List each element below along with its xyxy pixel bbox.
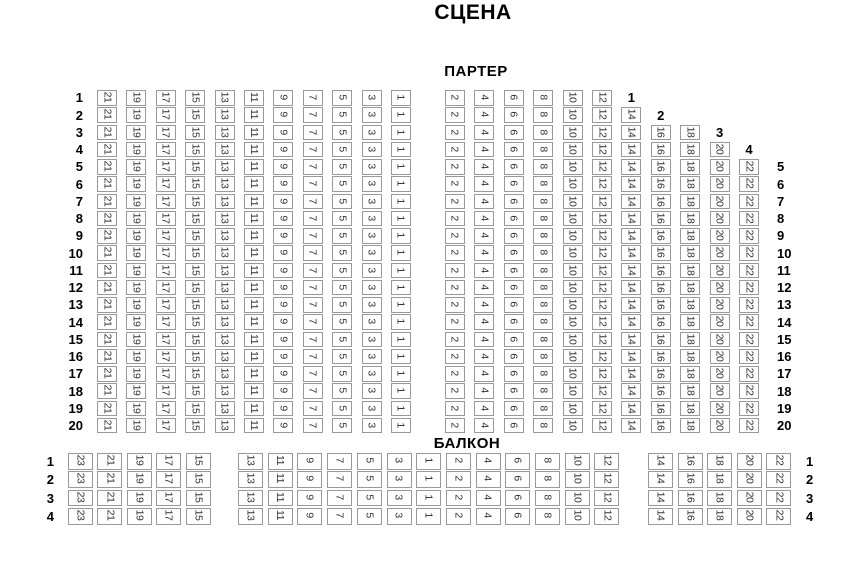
seat[interactable]: 9 <box>297 490 322 507</box>
seat[interactable]: 2 <box>445 228 465 244</box>
seat[interactable]: 2 <box>445 280 465 296</box>
seat[interactable]: 22 <box>739 176 759 192</box>
seat[interactable]: 14 <box>621 280 641 296</box>
seat[interactable]: 18 <box>680 176 700 192</box>
seat[interactable]: 13 <box>215 245 235 261</box>
seat[interactable]: 19 <box>126 383 146 399</box>
seat[interactable]: 1 <box>391 107 411 123</box>
seat[interactable]: 1 <box>391 90 411 106</box>
seat[interactable]: 15 <box>185 142 205 158</box>
seat[interactable]: 3 <box>362 366 382 382</box>
seat[interactable]: 11 <box>244 90 264 106</box>
seat[interactable]: 10 <box>563 142 583 158</box>
seat[interactable]: 1 <box>391 418 411 434</box>
seat[interactable]: 8 <box>535 453 560 470</box>
seat[interactable]: 6 <box>504 280 524 296</box>
seat[interactable]: 20 <box>737 490 762 507</box>
seat[interactable]: 1 <box>391 159 411 175</box>
seat[interactable]: 15 <box>185 245 205 261</box>
seat[interactable]: 1 <box>391 125 411 141</box>
seat[interactable]: 16 <box>678 453 703 470</box>
seat[interactable]: 15 <box>185 194 205 210</box>
seat[interactable]: 10 <box>563 228 583 244</box>
seat[interactable]: 5 <box>332 107 352 123</box>
seat[interactable]: 3 <box>362 107 382 123</box>
seat[interactable]: 19 <box>126 366 146 382</box>
seat[interactable]: 22 <box>739 297 759 313</box>
seat[interactable]: 21 <box>97 383 117 399</box>
seat[interactable]: 21 <box>97 107 117 123</box>
seat[interactable]: 10 <box>563 194 583 210</box>
seat[interactable]: 14 <box>621 125 641 141</box>
seat[interactable]: 14 <box>621 314 641 330</box>
seat[interactable]: 13 <box>215 366 235 382</box>
seat[interactable]: 7 <box>303 366 323 382</box>
seat[interactable]: 21 <box>97 297 117 313</box>
seat[interactable]: 20 <box>710 245 730 261</box>
seat[interactable]: 22 <box>739 228 759 244</box>
seat[interactable]: 9 <box>273 383 293 399</box>
seat[interactable]: 20 <box>737 471 762 488</box>
seat[interactable]: 4 <box>476 508 501 525</box>
seat[interactable]: 3 <box>362 401 382 417</box>
seat[interactable]: 3 <box>362 314 382 330</box>
seat[interactable]: 2 <box>445 194 465 210</box>
seat[interactable]: 6 <box>504 125 524 141</box>
seat[interactable]: 7 <box>303 159 323 175</box>
seat[interactable]: 3 <box>362 280 382 296</box>
seat[interactable]: 18 <box>707 471 732 488</box>
seat[interactable]: 20 <box>710 211 730 227</box>
seat[interactable]: 9 <box>273 349 293 365</box>
seat[interactable]: 18 <box>680 332 700 348</box>
seat[interactable]: 1 <box>391 401 411 417</box>
seat[interactable]: 11 <box>244 418 264 434</box>
seat[interactable]: 4 <box>474 366 494 382</box>
seat[interactable]: 20 <box>710 401 730 417</box>
seat[interactable]: 12 <box>592 159 612 175</box>
seat[interactable]: 17 <box>156 159 176 175</box>
seat[interactable]: 20 <box>710 297 730 313</box>
seat[interactable]: 17 <box>156 401 176 417</box>
seat[interactable]: 16 <box>651 245 671 261</box>
seat[interactable]: 6 <box>504 349 524 365</box>
seat[interactable]: 12 <box>592 366 612 382</box>
seat[interactable]: 11 <box>244 263 264 279</box>
seat[interactable]: 21 <box>97 176 117 192</box>
seat[interactable]: 2 <box>445 211 465 227</box>
seat[interactable]: 11 <box>244 211 264 227</box>
seat[interactable]: 4 <box>474 332 494 348</box>
seat[interactable]: 10 <box>563 280 583 296</box>
seat[interactable]: 16 <box>651 349 671 365</box>
seat[interactable]: 5 <box>332 245 352 261</box>
seat[interactable]: 13 <box>215 263 235 279</box>
seat[interactable]: 13 <box>238 471 263 488</box>
seat[interactable]: 21 <box>97 263 117 279</box>
seat[interactable]: 16 <box>651 314 671 330</box>
seat[interactable]: 8 <box>533 418 553 434</box>
seat[interactable]: 7 <box>303 349 323 365</box>
seat[interactable]: 12 <box>592 297 612 313</box>
seat[interactable]: 5 <box>332 366 352 382</box>
seat[interactable]: 18 <box>680 263 700 279</box>
seat[interactable]: 4 <box>474 383 494 399</box>
seat[interactable]: 11 <box>244 314 264 330</box>
seat[interactable]: 12 <box>592 107 612 123</box>
seat[interactable]: 17 <box>156 176 176 192</box>
seat[interactable]: 5 <box>332 211 352 227</box>
seat[interactable]: 12 <box>592 245 612 261</box>
seat[interactable]: 1 <box>391 314 411 330</box>
seat[interactable]: 10 <box>563 211 583 227</box>
seat[interactable]: 14 <box>621 159 641 175</box>
seat[interactable]: 18 <box>680 245 700 261</box>
seat[interactable]: 3 <box>387 508 412 525</box>
seat[interactable]: 3 <box>362 194 382 210</box>
seat[interactable]: 5 <box>332 280 352 296</box>
seat[interactable]: 18 <box>680 228 700 244</box>
seat[interactable]: 3 <box>362 211 382 227</box>
seat[interactable]: 4 <box>474 228 494 244</box>
seat[interactable]: 22 <box>739 263 759 279</box>
seat[interactable]: 12 <box>592 418 612 434</box>
seat[interactable]: 9 <box>273 107 293 123</box>
seat[interactable]: 6 <box>505 508 530 525</box>
seat[interactable]: 10 <box>563 159 583 175</box>
seat[interactable]: 21 <box>97 159 117 175</box>
seat[interactable]: 17 <box>156 90 176 106</box>
seat[interactable]: 9 <box>273 125 293 141</box>
seat[interactable]: 17 <box>156 383 176 399</box>
seat[interactable]: 11 <box>244 142 264 158</box>
seat[interactable]: 9 <box>273 194 293 210</box>
seat[interactable]: 13 <box>215 211 235 227</box>
seat[interactable]: 11 <box>244 349 264 365</box>
seat[interactable]: 4 <box>474 125 494 141</box>
seat[interactable]: 13 <box>215 297 235 313</box>
seat[interactable]: 3 <box>362 125 382 141</box>
seat[interactable]: 3 <box>387 490 412 507</box>
seat[interactable]: 14 <box>621 332 641 348</box>
seat[interactable]: 6 <box>505 471 530 488</box>
seat[interactable]: 6 <box>504 401 524 417</box>
seat[interactable]: 17 <box>156 280 176 296</box>
seat[interactable]: 18 <box>680 159 700 175</box>
seat[interactable]: 6 <box>504 418 524 434</box>
seat[interactable]: 10 <box>563 176 583 192</box>
seat[interactable]: 20 <box>710 349 730 365</box>
seat[interactable]: 10 <box>563 245 583 261</box>
seat[interactable]: 15 <box>185 176 205 192</box>
seat[interactable]: 11 <box>244 245 264 261</box>
seat[interactable]: 20 <box>710 280 730 296</box>
seat[interactable]: 4 <box>476 471 501 488</box>
seat[interactable]: 13 <box>238 508 263 525</box>
seat[interactable]: 6 <box>504 297 524 313</box>
seat[interactable]: 19 <box>126 280 146 296</box>
seat[interactable]: 19 <box>126 211 146 227</box>
seat[interactable]: 23 <box>68 471 93 488</box>
seat[interactable]: 9 <box>297 508 322 525</box>
seat[interactable]: 14 <box>621 245 641 261</box>
seat[interactable]: 9 <box>273 401 293 417</box>
seat[interactable]: 1 <box>391 194 411 210</box>
seat[interactable]: 11 <box>244 332 264 348</box>
seat[interactable]: 4 <box>474 159 494 175</box>
seat[interactable]: 11 <box>244 366 264 382</box>
seat[interactable]: 20 <box>710 159 730 175</box>
seat[interactable]: 7 <box>303 176 323 192</box>
seat[interactable]: 22 <box>766 471 791 488</box>
seat[interactable]: 15 <box>185 280 205 296</box>
seat[interactable]: 21 <box>97 211 117 227</box>
seat[interactable]: 19 <box>126 125 146 141</box>
seat[interactable]: 8 <box>533 263 553 279</box>
seat[interactable]: 13 <box>215 90 235 106</box>
seat[interactable]: 5 <box>332 90 352 106</box>
seat[interactable]: 2 <box>445 245 465 261</box>
seat[interactable]: 5 <box>357 453 382 470</box>
seat[interactable]: 1 <box>391 366 411 382</box>
seat[interactable]: 18 <box>707 490 732 507</box>
seat[interactable]: 4 <box>474 297 494 313</box>
seat[interactable]: 18 <box>680 142 700 158</box>
seat[interactable]: 22 <box>739 211 759 227</box>
seat[interactable]: 22 <box>739 314 759 330</box>
seat[interactable]: 22 <box>739 194 759 210</box>
seat[interactable]: 20 <box>710 383 730 399</box>
seat[interactable]: 19 <box>126 297 146 313</box>
seat[interactable]: 7 <box>327 490 352 507</box>
seat[interactable]: 1 <box>416 453 441 470</box>
seat[interactable]: 14 <box>648 508 673 525</box>
seat[interactable]: 6 <box>504 228 524 244</box>
seat[interactable]: 4 <box>474 107 494 123</box>
seat[interactable]: 13 <box>215 383 235 399</box>
seat[interactable]: 16 <box>651 142 671 158</box>
seat[interactable]: 20 <box>710 332 730 348</box>
seat[interactable]: 11 <box>244 176 264 192</box>
seat[interactable]: 14 <box>621 194 641 210</box>
seat[interactable]: 10 <box>563 314 583 330</box>
seat[interactable]: 12 <box>592 383 612 399</box>
seat[interactable]: 2 <box>446 508 471 525</box>
seat[interactable]: 3 <box>362 228 382 244</box>
seat[interactable]: 14 <box>621 263 641 279</box>
seat[interactable]: 16 <box>651 211 671 227</box>
seat[interactable]: 15 <box>186 453 211 470</box>
seat[interactable]: 22 <box>739 159 759 175</box>
seat[interactable]: 9 <box>273 142 293 158</box>
seat[interactable]: 8 <box>533 211 553 227</box>
seat[interactable]: 7 <box>303 90 323 106</box>
seat[interactable]: 15 <box>185 401 205 417</box>
seat[interactable]: 11 <box>244 159 264 175</box>
seat[interactable]: 4 <box>474 280 494 296</box>
seat[interactable]: 21 <box>97 401 117 417</box>
seat[interactable]: 9 <box>297 453 322 470</box>
seat[interactable]: 7 <box>303 107 323 123</box>
seat[interactable]: 3 <box>362 418 382 434</box>
seat[interactable]: 1 <box>391 211 411 227</box>
seat[interactable]: 1 <box>416 490 441 507</box>
seat[interactable]: 19 <box>127 490 152 507</box>
seat[interactable]: 7 <box>303 228 323 244</box>
seat[interactable]: 3 <box>362 383 382 399</box>
seat[interactable]: 15 <box>185 383 205 399</box>
seat[interactable]: 21 <box>97 349 117 365</box>
seat[interactable]: 15 <box>185 125 205 141</box>
seat[interactable]: 5 <box>332 159 352 175</box>
seat[interactable]: 5 <box>332 349 352 365</box>
seat[interactable]: 21 <box>97 194 117 210</box>
seat[interactable]: 8 <box>533 245 553 261</box>
seat[interactable]: 14 <box>621 176 641 192</box>
seat[interactable]: 19 <box>126 142 146 158</box>
seat[interactable]: 6 <box>505 490 530 507</box>
seat[interactable]: 10 <box>563 383 583 399</box>
seat[interactable]: 15 <box>185 107 205 123</box>
seat[interactable]: 8 <box>533 297 553 313</box>
seat[interactable]: 15 <box>185 418 205 434</box>
seat[interactable]: 5 <box>357 490 382 507</box>
seat[interactable]: 2 <box>445 401 465 417</box>
seat[interactable]: 7 <box>303 383 323 399</box>
seat[interactable]: 9 <box>273 332 293 348</box>
seat[interactable]: 20 <box>710 142 730 158</box>
seat[interactable]: 10 <box>565 453 590 470</box>
seat[interactable]: 1 <box>416 471 441 488</box>
seat[interactable]: 16 <box>651 228 671 244</box>
seat[interactable]: 2 <box>445 176 465 192</box>
seat[interactable]: 16 <box>651 418 671 434</box>
seat[interactable]: 16 <box>678 508 703 525</box>
seat[interactable]: 6 <box>504 263 524 279</box>
seat[interactable]: 9 <box>273 418 293 434</box>
seat[interactable]: 18 <box>680 280 700 296</box>
seat[interactable]: 5 <box>332 401 352 417</box>
seat[interactable]: 2 <box>445 90 465 106</box>
seat[interactable]: 14 <box>621 401 641 417</box>
seat[interactable]: 13 <box>238 453 263 470</box>
seat[interactable]: 5 <box>332 418 352 434</box>
seat[interactable]: 19 <box>126 349 146 365</box>
seat[interactable]: 19 <box>126 263 146 279</box>
seat[interactable]: 11 <box>244 297 264 313</box>
seat[interactable]: 12 <box>594 453 619 470</box>
seat[interactable]: 1 <box>391 297 411 313</box>
seat[interactable]: 21 <box>97 314 117 330</box>
seat[interactable]: 8 <box>533 401 553 417</box>
seat[interactable]: 3 <box>362 159 382 175</box>
seat[interactable]: 19 <box>126 159 146 175</box>
seat[interactable]: 12 <box>592 228 612 244</box>
seat[interactable]: 18 <box>680 125 700 141</box>
seat[interactable]: 9 <box>273 280 293 296</box>
seat[interactable]: 8 <box>533 107 553 123</box>
seat[interactable]: 6 <box>504 383 524 399</box>
seat[interactable]: 16 <box>651 297 671 313</box>
seat[interactable]: 4 <box>474 401 494 417</box>
seat[interactable]: 15 <box>186 508 211 525</box>
seat[interactable]: 18 <box>680 194 700 210</box>
seat[interactable]: 22 <box>739 245 759 261</box>
seat[interactable]: 12 <box>592 125 612 141</box>
seat[interactable]: 4 <box>476 453 501 470</box>
seat[interactable]: 8 <box>533 194 553 210</box>
seat[interactable]: 15 <box>185 349 205 365</box>
seat[interactable]: 14 <box>648 471 673 488</box>
seat[interactable]: 2 <box>445 159 465 175</box>
seat[interactable]: 2 <box>446 471 471 488</box>
seat[interactable]: 6 <box>504 211 524 227</box>
seat[interactable]: 7 <box>327 453 352 470</box>
seat[interactable]: 6 <box>504 194 524 210</box>
seat[interactable]: 5 <box>332 125 352 141</box>
seat[interactable]: 6 <box>505 453 530 470</box>
seat[interactable]: 18 <box>680 418 700 434</box>
seat[interactable]: 7 <box>303 418 323 434</box>
seat[interactable]: 22 <box>766 490 791 507</box>
seat[interactable]: 2 <box>445 314 465 330</box>
seat[interactable]: 22 <box>739 349 759 365</box>
seat[interactable]: 5 <box>332 263 352 279</box>
seat[interactable]: 4 <box>474 314 494 330</box>
seat[interactable]: 7 <box>303 194 323 210</box>
seat[interactable]: 6 <box>504 90 524 106</box>
seat[interactable]: 19 <box>127 453 152 470</box>
seat[interactable]: 4 <box>476 490 501 507</box>
seat[interactable]: 11 <box>244 107 264 123</box>
seat[interactable]: 18 <box>680 383 700 399</box>
seat[interactable]: 21 <box>97 508 122 525</box>
seat[interactable]: 11 <box>268 453 293 470</box>
seat[interactable]: 11 <box>244 228 264 244</box>
seat[interactable]: 2 <box>446 453 471 470</box>
seat[interactable]: 1 <box>391 332 411 348</box>
seat[interactable]: 2 <box>445 383 465 399</box>
seat[interactable]: 7 <box>303 245 323 261</box>
seat[interactable]: 8 <box>535 471 560 488</box>
seat[interactable]: 22 <box>739 418 759 434</box>
seat[interactable]: 13 <box>215 418 235 434</box>
seat[interactable]: 3 <box>362 263 382 279</box>
seat[interactable]: 7 <box>303 401 323 417</box>
seat[interactable]: 3 <box>362 349 382 365</box>
seat[interactable]: 9 <box>273 314 293 330</box>
seat[interactable]: 18 <box>680 297 700 313</box>
seat[interactable]: 6 <box>504 107 524 123</box>
seat[interactable]: 8 <box>533 142 553 158</box>
seat[interactable]: 5 <box>332 142 352 158</box>
seat[interactable]: 13 <box>238 490 263 507</box>
seat[interactable]: 15 <box>185 211 205 227</box>
seat[interactable]: 13 <box>215 194 235 210</box>
seat[interactable]: 15 <box>185 90 205 106</box>
seat[interactable]: 12 <box>592 263 612 279</box>
seat[interactable]: 19 <box>127 471 152 488</box>
seat[interactable]: 13 <box>215 280 235 296</box>
seat[interactable]: 17 <box>156 453 181 470</box>
seat[interactable]: 13 <box>215 401 235 417</box>
seat[interactable]: 6 <box>504 245 524 261</box>
seat[interactable]: 21 <box>97 366 117 382</box>
seat[interactable]: 11 <box>268 508 293 525</box>
seat[interactable]: 13 <box>215 107 235 123</box>
seat[interactable]: 6 <box>504 142 524 158</box>
seat[interactable]: 18 <box>680 211 700 227</box>
